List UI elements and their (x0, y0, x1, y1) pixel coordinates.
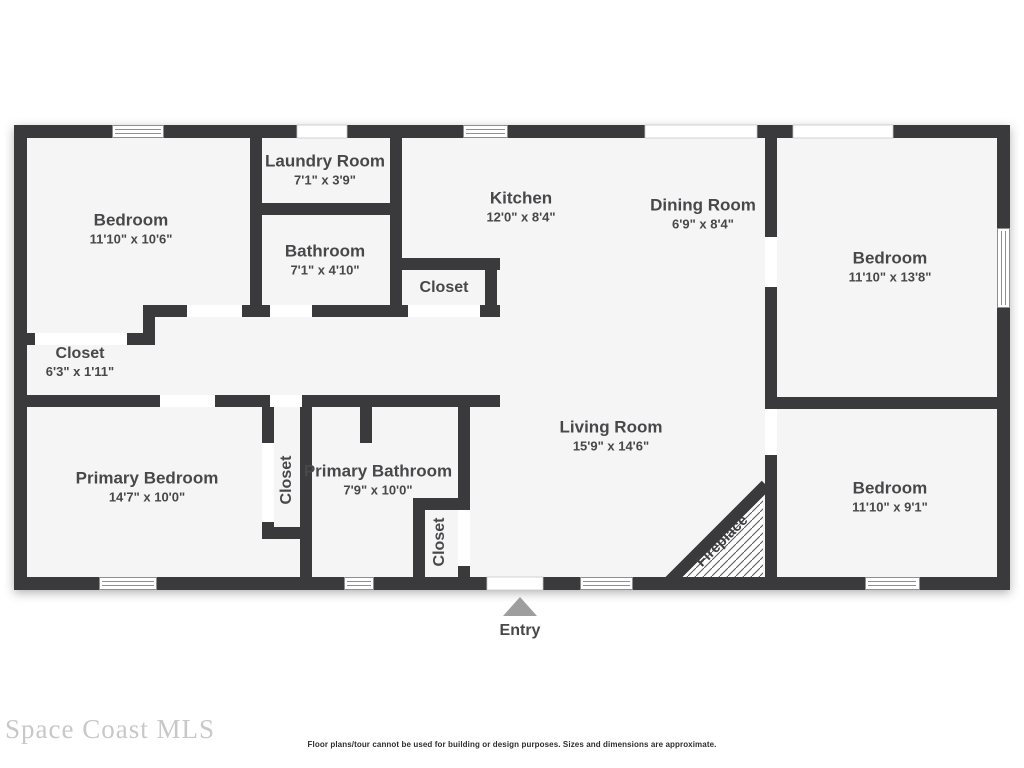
room-label-bathroom: Bathroom 7'1" x 4'10" (285, 241, 365, 278)
room-label-closet-entry: Closet (431, 518, 449, 567)
room-label-laundry-room: Laundry Room 7'1" x 3'9" (265, 151, 385, 188)
room-label-bedroom-3: Bedroom 11'10" x 9'1" (852, 478, 928, 515)
floor-plan-drawing (0, 0, 1024, 768)
window-icon (464, 126, 508, 138)
window-icon (345, 578, 374, 590)
window-icon (113, 126, 164, 138)
room-label-closet-middle: Closet (278, 456, 296, 505)
room-label-dining-room: Dining Room 6'9" x 8'4" (650, 195, 756, 232)
room-label-bedroom-1: Bedroom 11'10" x 10'6" (90, 210, 173, 247)
room-label-primary-bedroom: Primary Bedroom 14'7" x 10'0" (76, 468, 219, 505)
room-label-closet-hall: Closet (420, 279, 469, 297)
entry-label: Entry (500, 622, 541, 640)
room-label-living-room: Living Room 15'9" x 14'6" (560, 417, 663, 454)
window-icon (998, 229, 1010, 308)
room-label-bedroom-2: Bedroom 11'10" x 13'8" (849, 248, 932, 285)
room-label-kitchen: Kitchen 12'0" x 8'4" (486, 188, 555, 225)
disclaimer-text: Floor plans/tour cannot be used for buil… (0, 740, 1024, 749)
floor-plan-page: Bedroom 11'10" x 10'6" Laundry Room 7'1"… (0, 0, 1024, 768)
window-icon (100, 578, 157, 590)
room-label-primary-bathroom: Primary Bathroom 7'9" x 10'0" (304, 461, 452, 498)
window-icon (581, 578, 633, 590)
room-label-closet-left: Closet 6'3" x 1'11" (46, 345, 114, 381)
entry-arrow-icon (503, 597, 537, 616)
window-icon (866, 578, 920, 590)
